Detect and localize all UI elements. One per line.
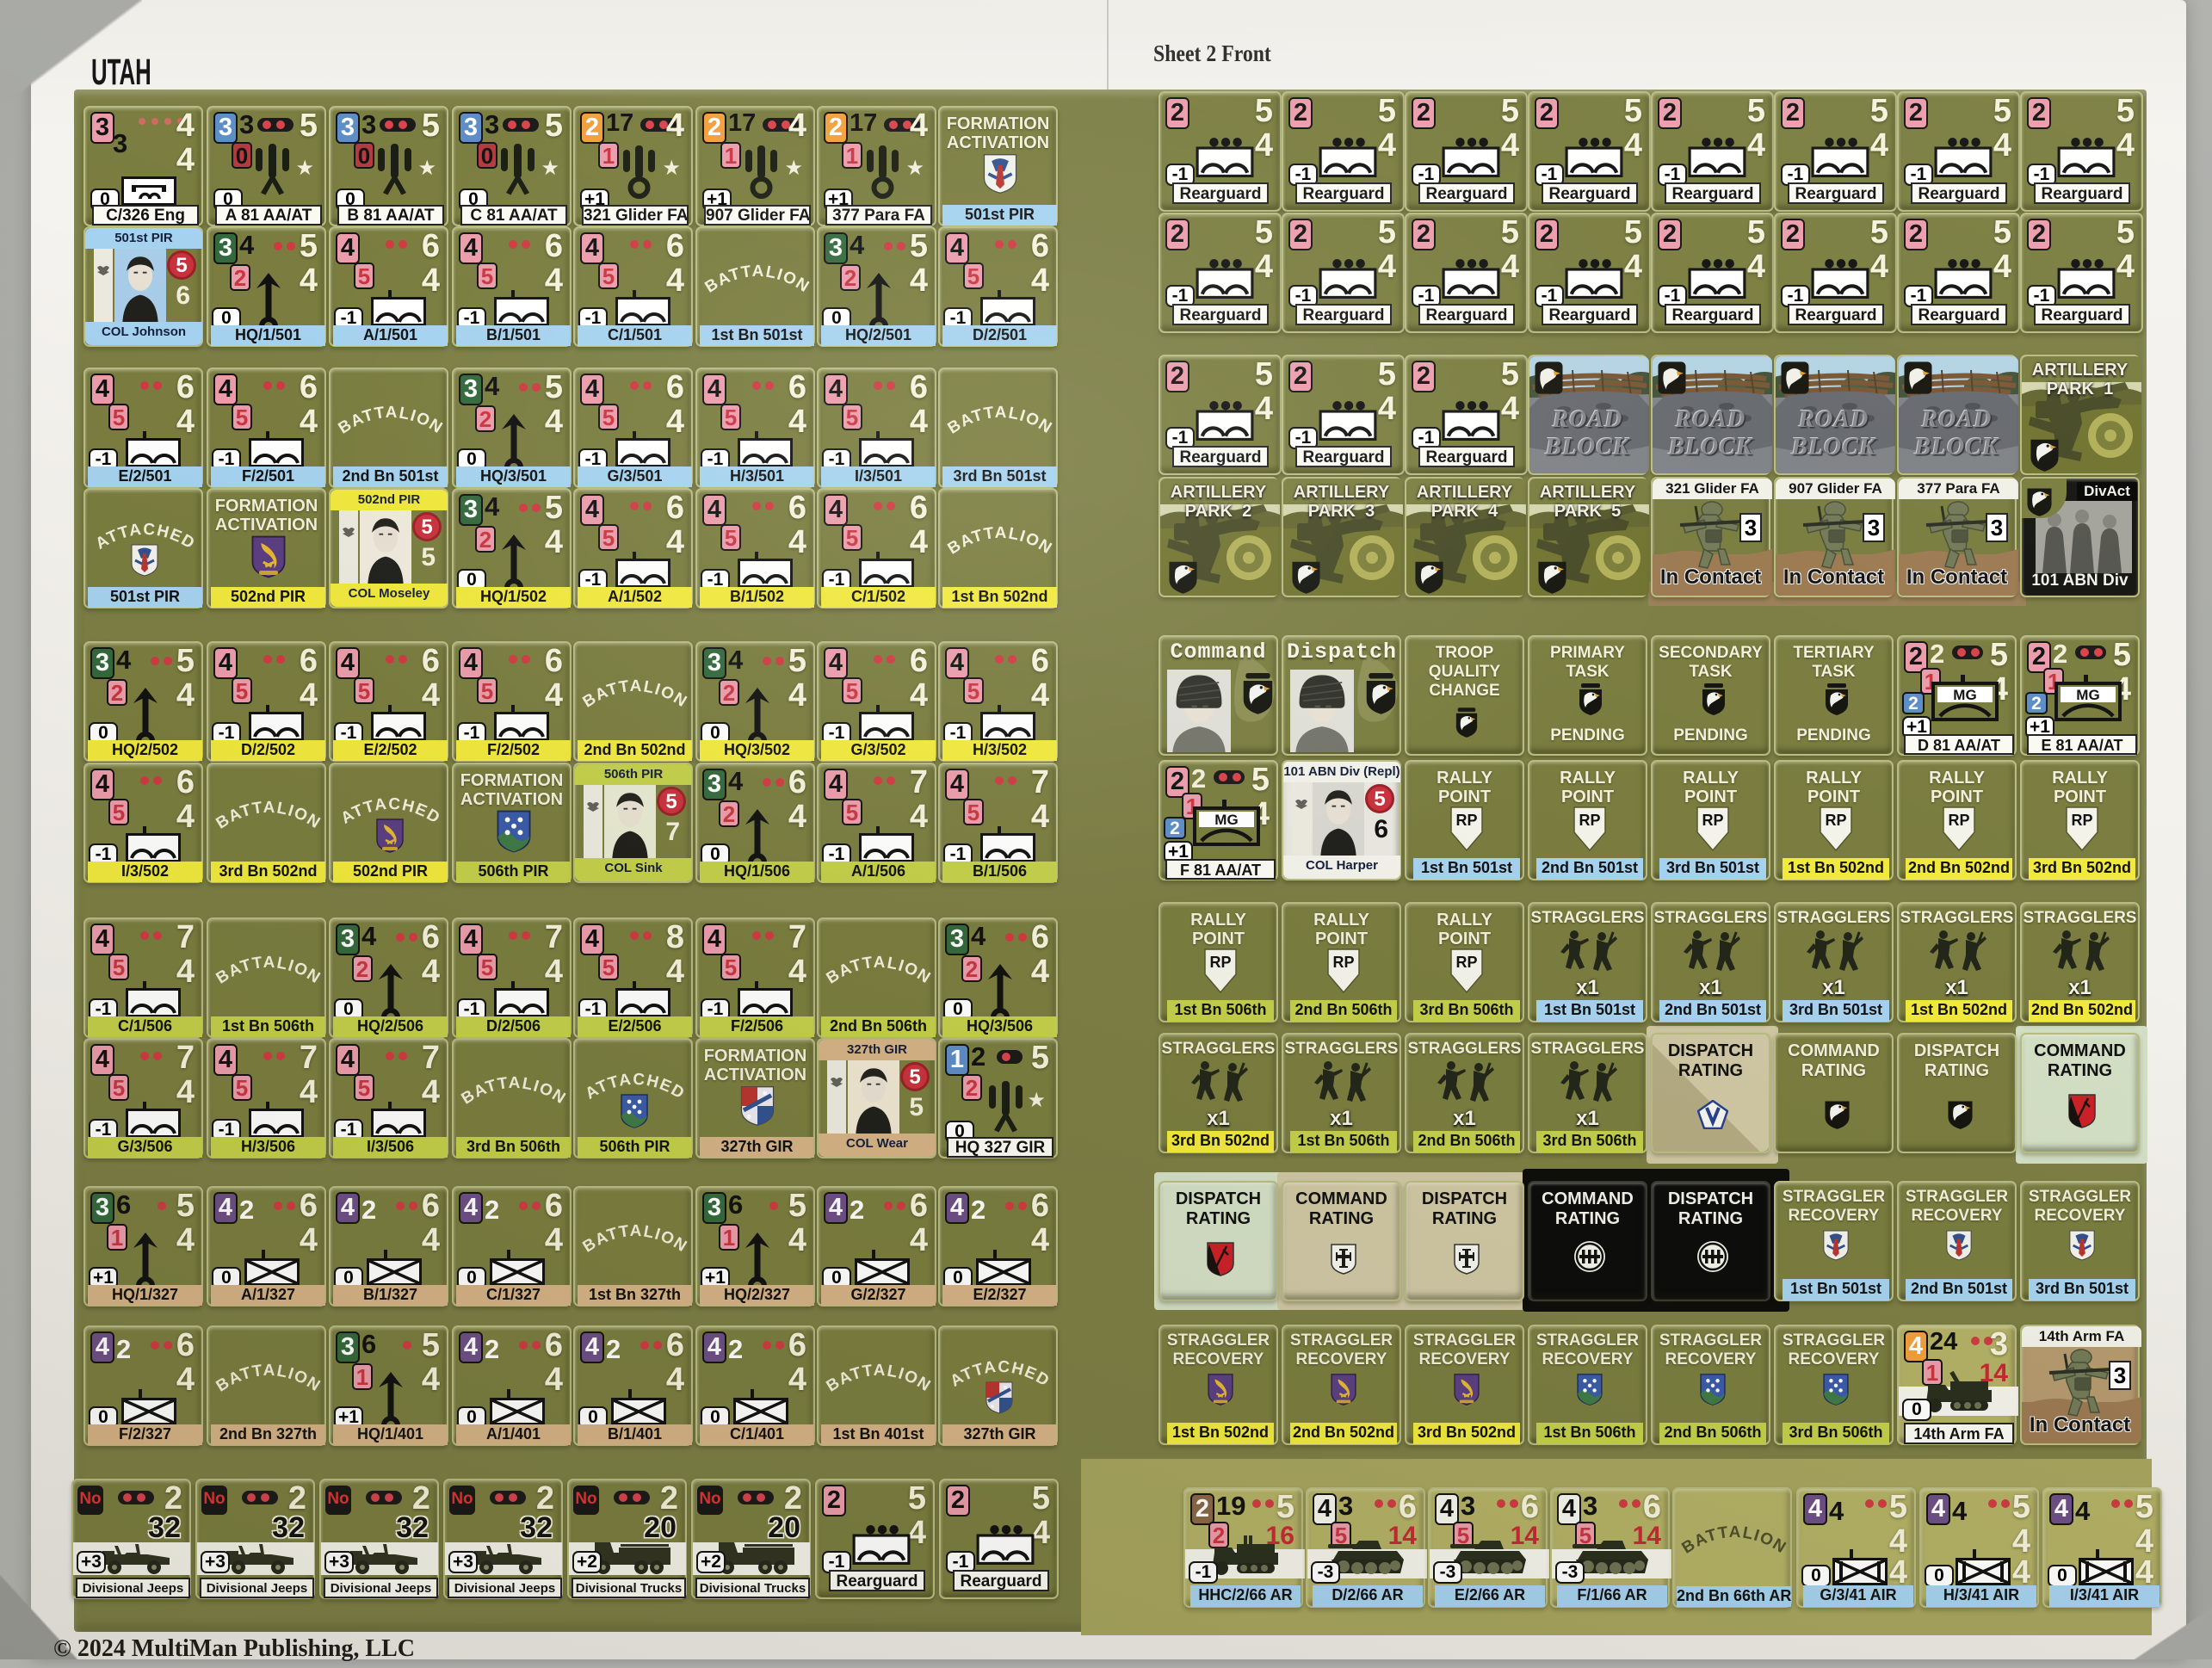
svg-text:MG: MG (1214, 812, 1238, 828)
svg-text:BATTALION: BATTALION (213, 954, 324, 988)
svg-text:RP: RP (2071, 812, 2092, 829)
svg-text:BATTALION: BATTALION (945, 524, 1056, 559)
svg-text:BATTALION: BATTALION (945, 404, 1056, 438)
svg-text:BATTALION: BATTALION (580, 1222, 691, 1257)
svg-text:RP: RP (1332, 954, 1354, 971)
svg-text:BATTALION: BATTALION (824, 1362, 935, 1396)
svg-text:RP: RP (1702, 812, 1723, 829)
svg-text:BATTALION: BATTALION (459, 1074, 570, 1109)
svg-text:RP: RP (1455, 812, 1477, 829)
svg-text:BATTALION: BATTALION (213, 799, 324, 833)
svg-text:BATTALION: BATTALION (580, 677, 691, 712)
svg-text:RP: RP (1579, 812, 1600, 829)
svg-text:RP: RP (1209, 954, 1231, 971)
svg-text:RP: RP (1455, 954, 1477, 971)
svg-text:BATTALION: BATTALION (702, 263, 813, 297)
svg-text:BATTALION: BATTALION (1679, 1523, 1790, 1558)
svg-text:BATTALION: BATTALION (824, 954, 935, 988)
svg-text:MG: MG (1953, 687, 1976, 703)
svg-text:MG: MG (2076, 687, 2099, 703)
svg-text:RP: RP (1825, 812, 1846, 829)
svg-text:RP: RP (1948, 812, 1969, 829)
svg-text:BATTALION: BATTALION (336, 404, 447, 438)
svg-text:BATTALION: BATTALION (213, 1362, 324, 1396)
